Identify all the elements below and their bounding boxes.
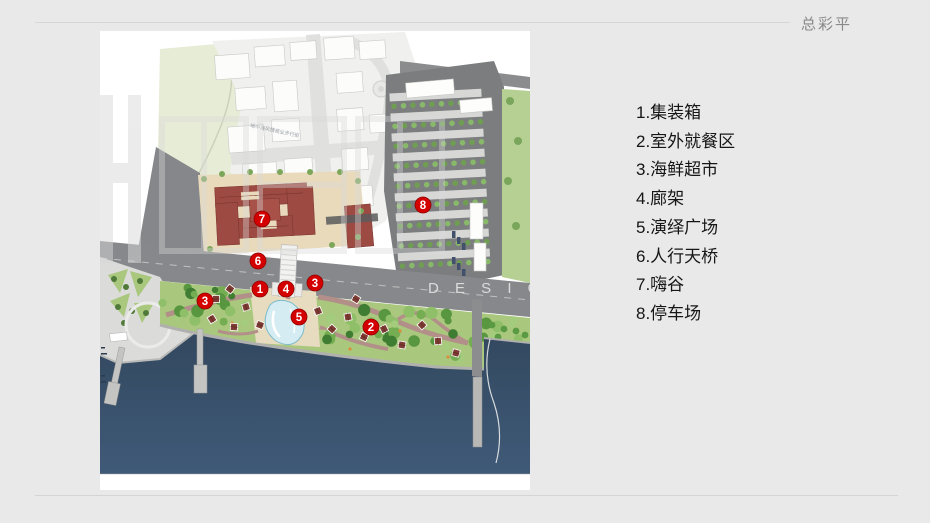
plan-marker-5: 5 xyxy=(291,309,307,325)
legend-item: 7.嗨谷 xyxy=(636,271,735,300)
plan-border xyxy=(100,473,530,474)
watermark-design-text: D E S I G N xyxy=(428,280,530,297)
plan-marker-4: 4 xyxy=(278,281,294,297)
cottage xyxy=(213,296,220,303)
svg-text:2: 2 xyxy=(368,322,374,334)
legend-item: 8.停车场 xyxy=(636,300,735,329)
page-title: 总彩平 xyxy=(801,13,852,34)
footer-rule xyxy=(35,495,898,496)
cottage xyxy=(452,349,461,358)
svg-text:1: 1 xyxy=(257,284,264,296)
slide: { "slide": { "title": "总彩平" }, "legend":… xyxy=(0,0,930,523)
cottage xyxy=(344,313,352,321)
svg-text:7: 7 xyxy=(259,214,265,226)
header-rule xyxy=(35,22,790,23)
legend-item: 1.集装箱 xyxy=(636,99,735,128)
plan-marker-1: 1 xyxy=(252,281,268,297)
legend-item: 3.海鲜超市 xyxy=(636,156,735,185)
svg-text:4: 4 xyxy=(283,284,290,296)
plan-marker-3: 3 xyxy=(197,293,213,309)
plan-marker-6: 6 xyxy=(250,253,266,269)
svg-text:5: 5 xyxy=(296,312,303,324)
legend-item: 5.演绎广场 xyxy=(636,214,735,243)
legend-item: 2.室外就餐区 xyxy=(636,128,735,157)
svg-text:8: 8 xyxy=(420,200,427,212)
svg-text:3: 3 xyxy=(312,278,318,290)
legend-item: 6.人行天桥 xyxy=(636,243,735,272)
cottage xyxy=(434,337,442,345)
plan-marker-2: 2 xyxy=(363,319,379,335)
plan-marker-8: 8 xyxy=(415,197,431,213)
plan-marker-3: 3 xyxy=(307,275,323,291)
site-plan-image: 地中海风情商业步行街 xyxy=(100,31,530,490)
svg-text:3: 3 xyxy=(202,296,208,308)
cottage xyxy=(242,303,251,312)
cottage xyxy=(398,341,406,349)
site-plan-svg: 地中海风情商业步行街 xyxy=(100,31,530,490)
legend-list: 1.集装箱2.室外就餐区3.海鲜超市4.廊架5.演绎广场6.人行天桥7.嗨谷8.… xyxy=(636,99,735,329)
cottage xyxy=(230,323,238,331)
parking-area xyxy=(384,61,530,297)
svg-text:6: 6 xyxy=(255,256,261,268)
legend-item: 4.廊架 xyxy=(636,185,735,214)
plan-marker-7: 7 xyxy=(254,211,270,227)
